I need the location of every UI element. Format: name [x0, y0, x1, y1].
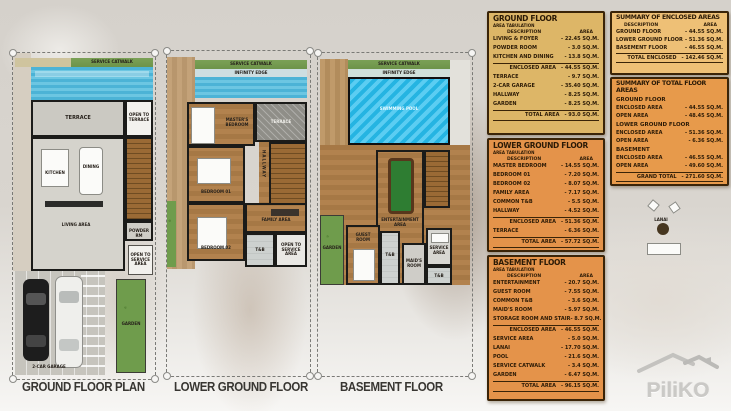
area-row: POOL- 21.6 SQ.M. [493, 353, 599, 362]
corner-marker-icon [306, 372, 314, 380]
table-body: MASTER BEDROOM- 14.55 SQ.M.BEDROOM 01- 7… [493, 162, 599, 248]
room-open-to-service: OPEN TO SERVICE AREA [128, 245, 153, 275]
room-open-to-service: OPEN TO SERVICE AREA [275, 233, 307, 267]
summary-enclosed-table: SUMMARY OF ENCLOSED AREAS DESCRIPTION AR… [610, 11, 729, 75]
room-terrace: TERRACE [255, 102, 307, 142]
area-row: POWDER ROOM- 3.0 SQ.M. [493, 44, 599, 53]
lanai-label: LANAI [650, 218, 672, 223]
infinity-edge: INFINITY EDGE [348, 69, 450, 77]
area-row: MAID'S ROOM- 5.97 SQ.M. [493, 306, 599, 315]
table-subtitle: AREA TABULATION [493, 267, 599, 272]
pool-edge [35, 71, 149, 77]
area-row: FAMILY AREA- 7.17 SQ.M. [493, 189, 599, 198]
corner-marker-icon [314, 372, 322, 380]
driveway: 2-CAR GARAGE [15, 271, 105, 375]
room-master-bedroom: MASTER'S BEDROOM [187, 102, 255, 146]
brand-name: PiliKO [635, 379, 721, 403]
area-row: COMMON T&B- 3.6 SQ.M. [493, 297, 599, 306]
garden-strip [167, 201, 176, 267]
area-row: HALLWAY- 8.25 SQ.M. [493, 91, 599, 100]
driveway-hatch [81, 271, 105, 375]
stairs [269, 142, 307, 212]
area-row: ENCLOSED AREA- 44.55 SQ.M. [616, 104, 723, 112]
table-title: GROUND FLOOR [493, 15, 599, 23]
kitchen-label: KITCHEN [39, 171, 71, 176]
black-car [23, 279, 49, 361]
dining-label: DINING [77, 165, 105, 170]
room-family-area: FAMILY AREA [245, 203, 307, 233]
corner-marker-icon [468, 49, 476, 57]
area-row: LOWER GROUND FLOOR- 51.36 SQ.M. [616, 36, 723, 44]
area-row: ENTERTAINMENT- 20.7 SQ.M. [493, 279, 599, 288]
side-setback [13, 53, 31, 271]
area-row: SERVICE AREA- 5.0 SQ.M. [493, 335, 599, 344]
corner-marker-icon [9, 375, 17, 383]
kitchen-counter [41, 149, 69, 187]
white-car [55, 276, 83, 368]
area-row: LIVING & FOYER- 22.45 SQ.M. [493, 35, 599, 44]
area-row: TERRACE- 9.7 SQ.M. [493, 73, 599, 82]
room-bedroom-01: BEDROOM 01 [187, 146, 245, 203]
hallway: HALLWAY [259, 142, 269, 212]
bed [197, 217, 227, 249]
room-service-catwalk: SERVICE CATWALK [195, 60, 307, 69]
lower-ground-floor-table: LOWER GROUND FLOOR AREA TABULATION DESCR… [487, 138, 605, 252]
table-body: ENTERTAINMENT- 20.7 SQ.M.GUEST ROOM- 7.5… [493, 279, 599, 392]
area-row: GARDEN- 8.25 SQ.M. [493, 100, 599, 109]
area-row: GARDEN- 6.47 SQ.M. [493, 371, 599, 380]
total-row: TOTAL AREA- 57.72 SQ.M. [493, 237, 599, 248]
summary-floor-heading: BASEMENT [616, 147, 723, 154]
room-garden: GARDEN [116, 279, 146, 373]
corner-marker-icon [163, 47, 171, 55]
stairs [424, 150, 450, 208]
side-wall [450, 60, 470, 145]
basement-floor-plan: SERVICE CATWALK INFINITY EDGE SWIMMING P… [317, 52, 473, 377]
corner-marker-icon [468, 372, 476, 380]
main-floor: KITCHEN DINING LIVING AREA [31, 137, 125, 271]
bed [353, 249, 375, 281]
summary-total-floor-table: SUMMARY OF TOTAL FLOOR AREAS GROUND FLOO… [610, 77, 729, 186]
room-maids: MAID'S ROOM [402, 243, 426, 285]
pool-below [31, 67, 153, 100]
room-tb-2: T&B [426, 266, 452, 285]
area-row: KITCHEN AND DINING- 13.8 SQ.M. [493, 53, 599, 62]
total-row: TOTAL AREA- 93.0 SQ.M. [493, 110, 599, 121]
area-row: COMMON T&B- 5.5 SQ.M. [493, 198, 599, 207]
bench [647, 243, 681, 255]
room-guest: GUEST ROOM [346, 225, 380, 285]
area-row: OPEN AREA- 6.36 SQ.M. [616, 137, 723, 145]
subtotal-row: ENCLOSED AREA- 46.55 SQ.M. [493, 325, 599, 335]
sofa [45, 201, 103, 207]
area-row: STORAGE ROOM AND STAIR- 8.7 SQ.M. [493, 315, 599, 324]
bed [197, 158, 231, 184]
room-bedroom-02: BEDROOM 02 [187, 203, 245, 261]
plan-title-ground: GROUND FLOOR PLAN [22, 380, 145, 394]
total-row: GRAND TOTAL- 271.60 SQ.M. [616, 172, 723, 182]
area-row: HALLWAY- 4.52 SQ.M. [493, 207, 599, 216]
area-row: OPEN AREA- 48.45 SQ.M. [616, 112, 723, 120]
room-powder: POWDER RM [125, 221, 153, 241]
subtotal-row: ENCLOSED AREA- 51.36 SQ.M. [493, 217, 599, 227]
table-title: LOWER GROUND FLOOR [493, 142, 599, 150]
room-tb: T&B [245, 233, 275, 267]
area-row: MASTER BEDROOM- 14.55 SQ.M. [493, 162, 599, 171]
roof-icon [635, 349, 721, 375]
sofa [271, 209, 299, 216]
table-subtitle: AREA TABULATION [493, 150, 599, 155]
pool-strip [195, 77, 307, 98]
plan-title-basement: BASEMENT FLOOR [340, 380, 443, 394]
stairs [125, 137, 153, 221]
summary-floor-heading: GROUND FLOOR [616, 97, 723, 104]
room-tb: T&B [380, 231, 400, 285]
summary-groups: GROUND FLOORENCLOSED AREA- 44.55 SQ.M.OP… [616, 97, 723, 170]
table-body: LIVING & FOYER- 22.45 SQ.M.POWDER ROOM- … [493, 35, 599, 121]
room-service-catwalk: SERVICE CATWALK [348, 60, 450, 69]
area-row: BEDROOM 02- 8.07 SQ.M. [493, 180, 599, 189]
corner-marker-icon [151, 375, 159, 383]
ground-floor-plan: SERVICE CATWALK TERRACE OPEN TO TERRACE … [12, 52, 156, 380]
watermark: PiliKO [635, 349, 721, 403]
bed [191, 107, 215, 144]
area-row: TERRACE- 6.36 SQ.M. [493, 227, 599, 236]
room-open-to-terrace: OPEN TO TERRACE [125, 100, 153, 137]
area-row: ENCLOSED AREA- 46.55 SQ.M. [616, 154, 723, 162]
round-table [657, 223, 669, 235]
lower-ground-floor-plan: SERVICE CATWALK INFINITY EDGE MASTER'S B… [166, 50, 311, 377]
grand-total: GRAND TOTAL- 271.60 SQ.M. [616, 172, 723, 182]
area-row: GROUND FLOOR- 44.55 SQ.M. [616, 28, 723, 36]
floorplan-sheet: SERVICE CATWALK TERRACE OPEN TO TERRACE … [0, 0, 731, 411]
room-swimming-pool: SWIMMING POOL [348, 77, 450, 145]
billiard-table [388, 158, 414, 214]
corner-marker-icon [151, 49, 159, 57]
table-body: GROUND FLOOR- 44.55 SQ.M.LOWER GROUND FL… [616, 28, 723, 63]
area-row: BASEMENT FLOOR- 46.55 SQ.M. [616, 44, 723, 52]
corner-marker-icon [306, 47, 314, 55]
room-service-area: SERVICE AREA [426, 228, 452, 266]
room-terrace: TERRACE [31, 100, 125, 137]
room-garden: GARDEN [320, 215, 344, 285]
subtotal-row: ENCLOSED AREA- 44.55 SQ.M. [493, 63, 599, 73]
corner-marker-icon [314, 49, 322, 57]
infinity-edge: INFINITY EDGE [195, 69, 307, 77]
garage-label: 2-CAR GARAGE [19, 365, 79, 370]
area-row: GUEST ROOM- 7.55 SQ.M. [493, 288, 599, 297]
area-row: BEDROOM 01- 7.20 SQ.M. [493, 171, 599, 180]
area-row: LANAI- 17.70 SQ.M. [493, 344, 599, 353]
dining-table [79, 147, 103, 195]
total-row: TOTAL ENCLOSED- 142.46 SQ.M. [616, 53, 723, 63]
area-row: SERVICE CATWALK- 3.4 SQ.M. [493, 362, 599, 371]
corner-marker-icon [163, 372, 171, 380]
area-row: OPEN AREA- 49.60 SQ.M. [616, 162, 723, 170]
room-service-catwalk: SERVICE CATWALK [71, 58, 153, 67]
corner-marker-icon [9, 49, 17, 57]
total-row: TOTAL AREA- 96.15 SQ.M. [493, 381, 599, 392]
summary-title: SUMMARY OF TOTAL FLOOR AREAS [616, 81, 723, 95]
area-row: ENCLOSED AREA- 51.36 SQ.M. [616, 129, 723, 137]
ground-floor-table: GROUND FLOOR AREA TABULATION DESCRIPTION… [487, 11, 605, 135]
basement-floor-table: BASEMENT FLOOR AREA TABULATION DESCRIPTI… [487, 255, 605, 401]
area-row: 2-CAR GARAGE- 35.40 SQ.M. [493, 82, 599, 91]
plan-title-lower-ground: LOWER GROUND FLOOR [174, 380, 308, 394]
table-subtitle: AREA TABULATION [493, 23, 599, 28]
appliance [431, 233, 449, 243]
summary-floor-heading: LOWER GROUND FLOOR [616, 122, 723, 129]
summary-title: SUMMARY OF ENCLOSED AREAS [616, 15, 723, 22]
living-label: LIVING AREA [51, 223, 101, 228]
table-title: BASEMENT FLOOR [493, 259, 599, 267]
